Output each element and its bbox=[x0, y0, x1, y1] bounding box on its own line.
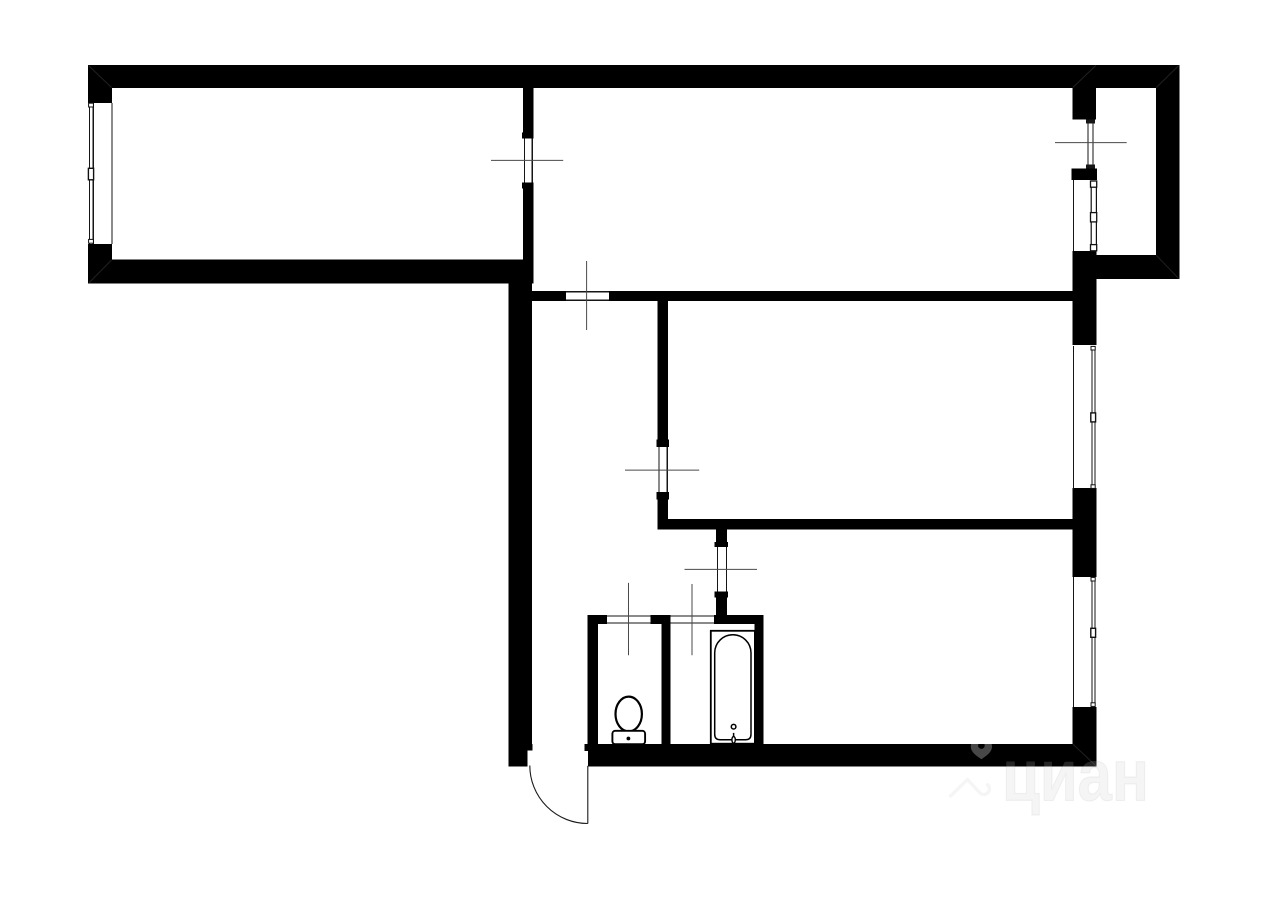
svg-text:циан: циан bbox=[1002, 736, 1149, 817]
